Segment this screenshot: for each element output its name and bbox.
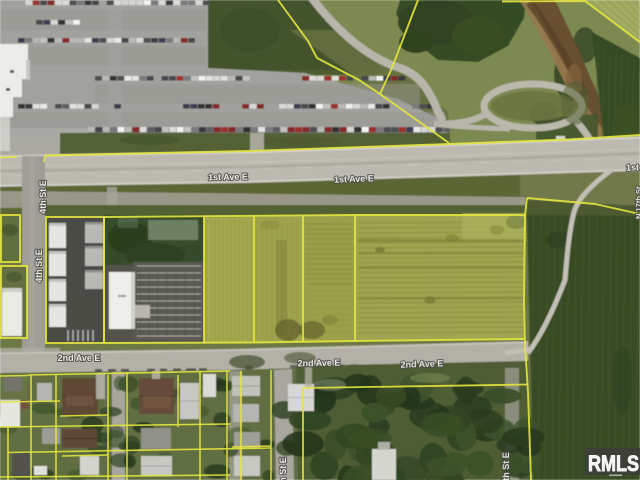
svg-text:1st Ave E: 1st Ave E: [208, 172, 248, 183]
svg-text:N 17th St: N 17th St: [634, 186, 640, 219]
svg-text:2nd Ave E: 2nd Ave E: [58, 353, 101, 363]
svg-text:4th St E: 4th St E: [34, 249, 44, 283]
svg-text:4th St E: 4th St E: [38, 180, 48, 214]
svg-text:2nd Ave E: 2nd Ave E: [297, 358, 340, 369]
svg-text:2nd Ave E: 2nd Ave E: [400, 358, 443, 369]
svg-text:6th St E: 6th St E: [501, 452, 511, 480]
svg-text:1st Ave E: 1st Ave E: [626, 161, 640, 172]
svg-text:5th St E: 5th St E: [278, 457, 288, 480]
svg-text:RMLS: RMLS: [588, 452, 639, 476]
svg-text:1st Ave E: 1st Ave E: [334, 173, 374, 184]
